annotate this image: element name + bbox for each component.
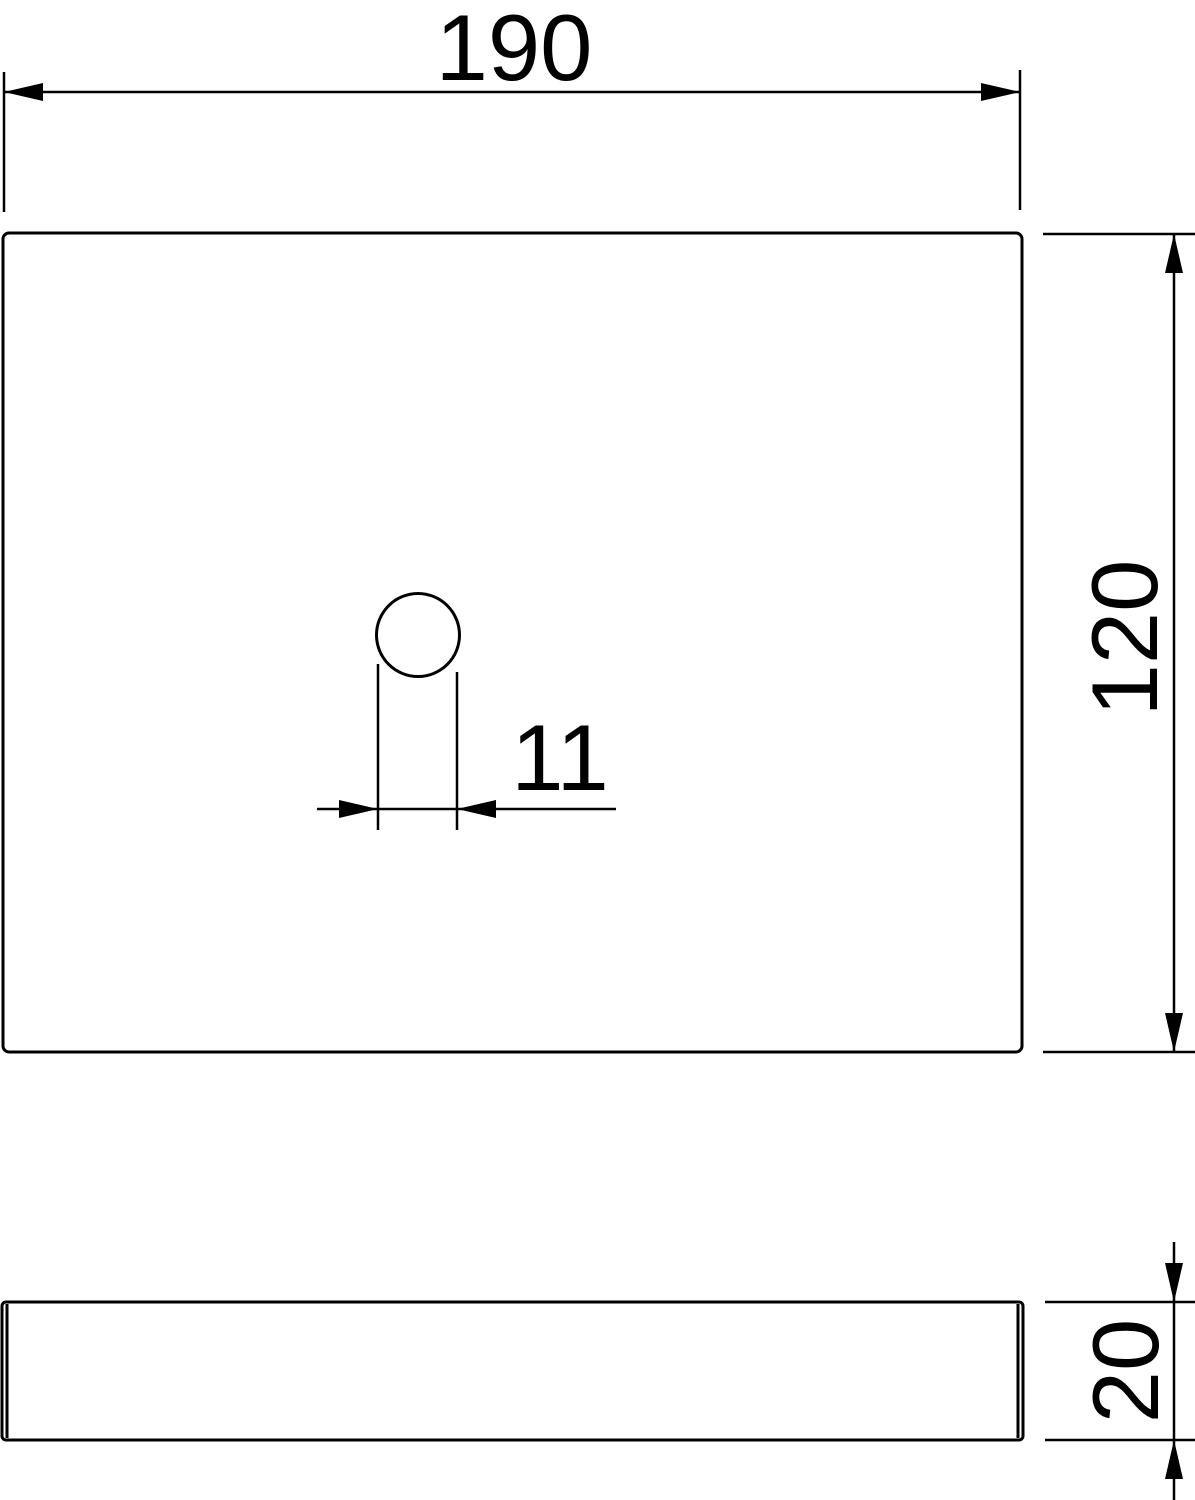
thickness-arrowhead-bottom-icon — [1165, 1440, 1183, 1479]
hole-offset-dimension-value: 11 — [511, 705, 609, 810]
height-arrowhead-top-icon — [1165, 234, 1183, 273]
width-dimension: 190 — [4, 0, 1020, 212]
width-arrowhead-right-icon — [981, 83, 1020, 101]
side-profile-outline — [2, 1302, 1023, 1440]
hole-offset-dimension: 11 — [317, 664, 616, 830]
side-view — [2, 1302, 1023, 1440]
thickness-dimension-value: 20 — [1073, 1319, 1178, 1424]
hole-circle — [377, 594, 460, 677]
top-view — [3, 233, 1022, 1052]
width-arrowhead-left-icon — [4, 83, 43, 101]
height-arrowhead-bottom-icon — [1165, 1013, 1183, 1052]
plate-outline — [3, 233, 1022, 1052]
hole-arrowhead-right-icon — [457, 800, 496, 818]
technical-drawing: 190 120 11 20 — [0, 0, 1195, 1500]
thickness-dimension: 20 — [1045, 1242, 1195, 1500]
width-dimension-value: 190 — [436, 0, 593, 100]
hole-arrowhead-left-icon — [339, 800, 378, 818]
thickness-arrowhead-top-icon — [1165, 1263, 1183, 1302]
height-dimension: 120 — [1043, 234, 1195, 1052]
height-dimension-value: 120 — [1072, 560, 1177, 717]
drawing-canvas: 190 120 11 20 — [0, 0, 1195, 1500]
